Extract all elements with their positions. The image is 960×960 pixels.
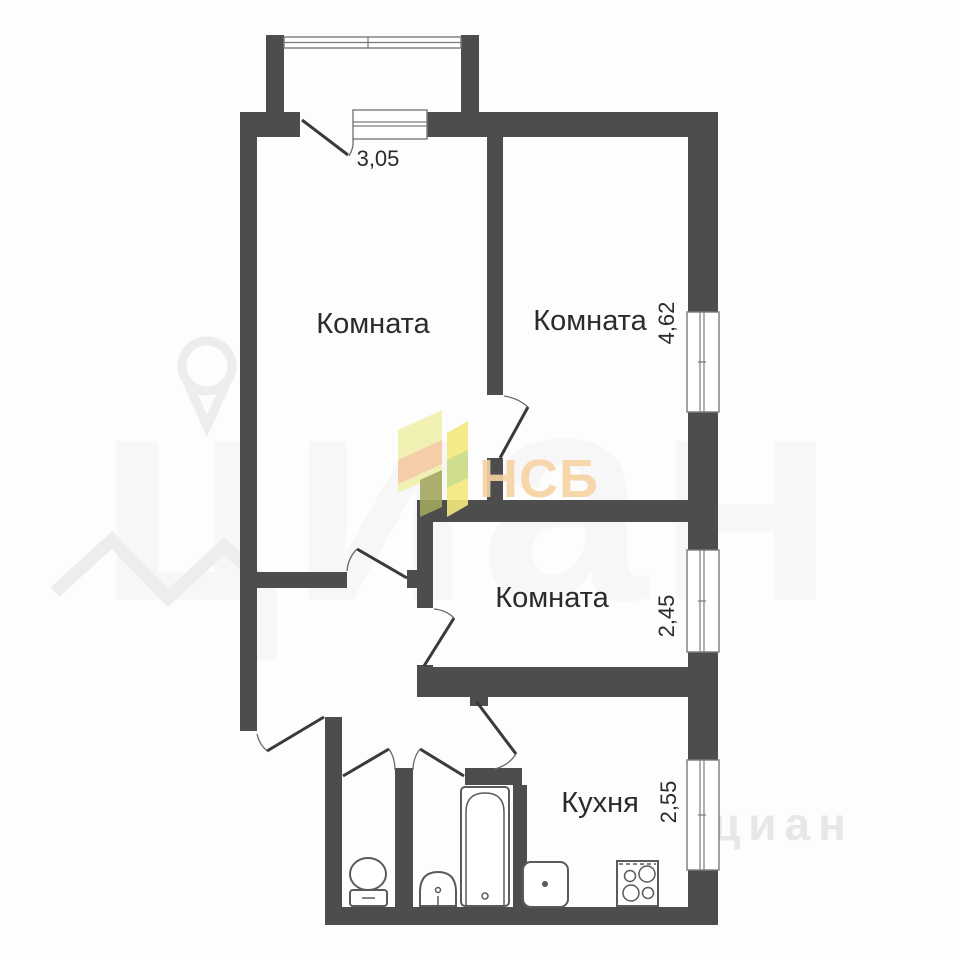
door-entrance bbox=[257, 717, 324, 751]
wall-left bbox=[240, 112, 257, 731]
watermark-cian-large: циан bbox=[96, 328, 845, 664]
balcony-pillar-left bbox=[266, 35, 284, 115]
kitchen-sink-icon bbox=[523, 862, 568, 907]
wall-bath-top-stub bbox=[465, 768, 522, 785]
room-label-top-left: Комната bbox=[316, 308, 430, 340]
balcony-window-frame bbox=[353, 110, 427, 139]
washbasin-icon bbox=[420, 872, 456, 906]
floorplan-drawing: циан циан bbox=[0, 0, 960, 960]
bathtub-icon bbox=[461, 787, 509, 906]
wall-left-room-door-jamb bbox=[407, 570, 417, 588]
balcony-pillar-right bbox=[461, 35, 479, 115]
floorplan-page: циан циан bbox=[0, 0, 960, 960]
room-label-top-right: Комната bbox=[533, 305, 647, 337]
wall-middle-room-left-upper bbox=[417, 522, 433, 608]
wall-wc-left bbox=[325, 717, 342, 907]
wall-partition-rooms-upper bbox=[487, 137, 503, 395]
window-room-right bbox=[687, 312, 719, 412]
balcony bbox=[266, 35, 479, 115]
logo-nsb-text: НСБ bbox=[479, 449, 599, 509]
room-label-kitchen: Кухня bbox=[561, 787, 639, 819]
wall-bottom bbox=[325, 907, 718, 925]
dim-balcony-door: 3,05 bbox=[357, 146, 400, 171]
window-kitchen bbox=[687, 760, 719, 870]
dim-room-middle: 2,45 bbox=[654, 595, 679, 638]
balcony-window bbox=[353, 110, 427, 139]
watermark-cian-small: циан bbox=[712, 798, 854, 850]
dim-room-right: 4,62 bbox=[654, 302, 679, 345]
room-label-middle: Комната bbox=[495, 582, 609, 614]
wall-kitchen-divider bbox=[417, 667, 690, 697]
toilet-icon bbox=[350, 858, 387, 906]
dim-kitchen: 2,55 bbox=[656, 781, 681, 824]
door-kitchen bbox=[476, 701, 516, 769]
door-wc bbox=[343, 749, 395, 776]
wall-left-room-bottom bbox=[257, 572, 347, 588]
door-bathroom bbox=[413, 749, 464, 776]
wall-wc-bath-partition bbox=[395, 768, 413, 907]
window-room-middle bbox=[687, 550, 719, 652]
stove-icon bbox=[617, 861, 658, 906]
